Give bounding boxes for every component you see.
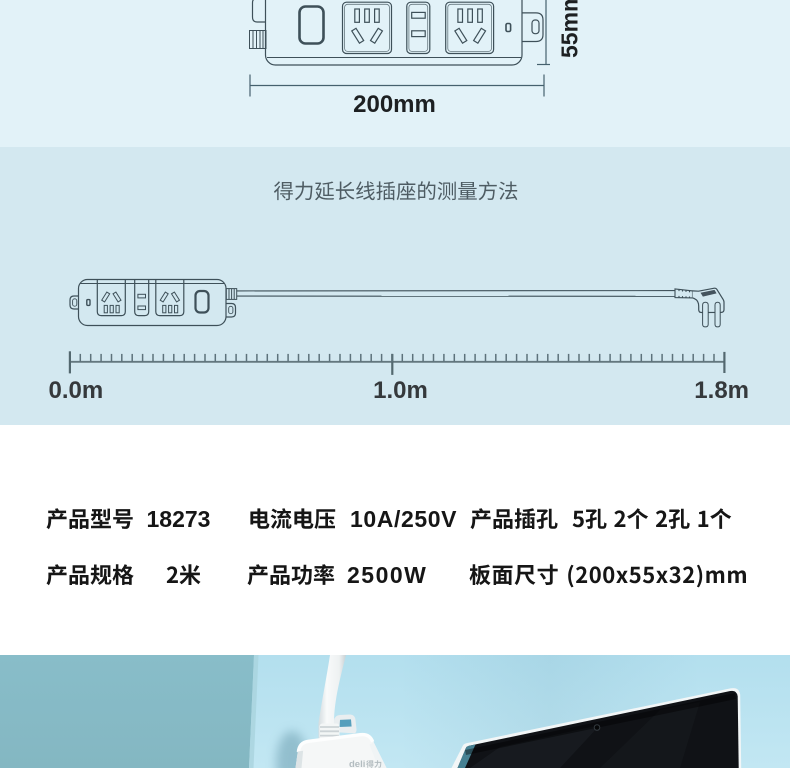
svg-text:deli: deli bbox=[349, 759, 365, 768]
svg-text:10A/250V: 10A/250V bbox=[350, 506, 457, 532]
svg-text:1.8m: 1.8m bbox=[694, 377, 749, 404]
svg-text:200mm: 200mm bbox=[353, 91, 436, 118]
svg-text:2500W: 2500W bbox=[347, 562, 427, 588]
svg-text:0.0m: 0.0m bbox=[49, 377, 104, 404]
svg-text:18273: 18273 bbox=[147, 506, 211, 532]
svg-text:1.0m: 1.0m bbox=[373, 377, 428, 404]
svg-text:55mm: 55mm bbox=[557, 0, 583, 58]
